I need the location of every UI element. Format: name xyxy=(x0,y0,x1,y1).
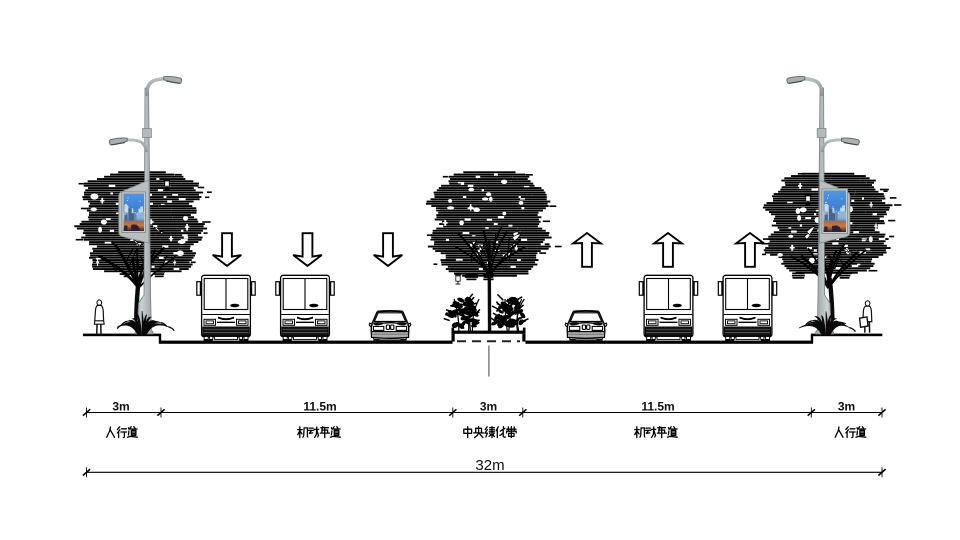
svg-text:32m: 32m xyxy=(475,457,504,474)
svg-text:11.5m: 11.5m xyxy=(641,400,674,414)
svg-text:3m: 3m xyxy=(112,400,129,414)
svg-text:3m: 3m xyxy=(838,400,855,414)
svg-text:3m: 3m xyxy=(480,400,497,414)
svg-text:11.5m: 11.5m xyxy=(303,400,336,414)
